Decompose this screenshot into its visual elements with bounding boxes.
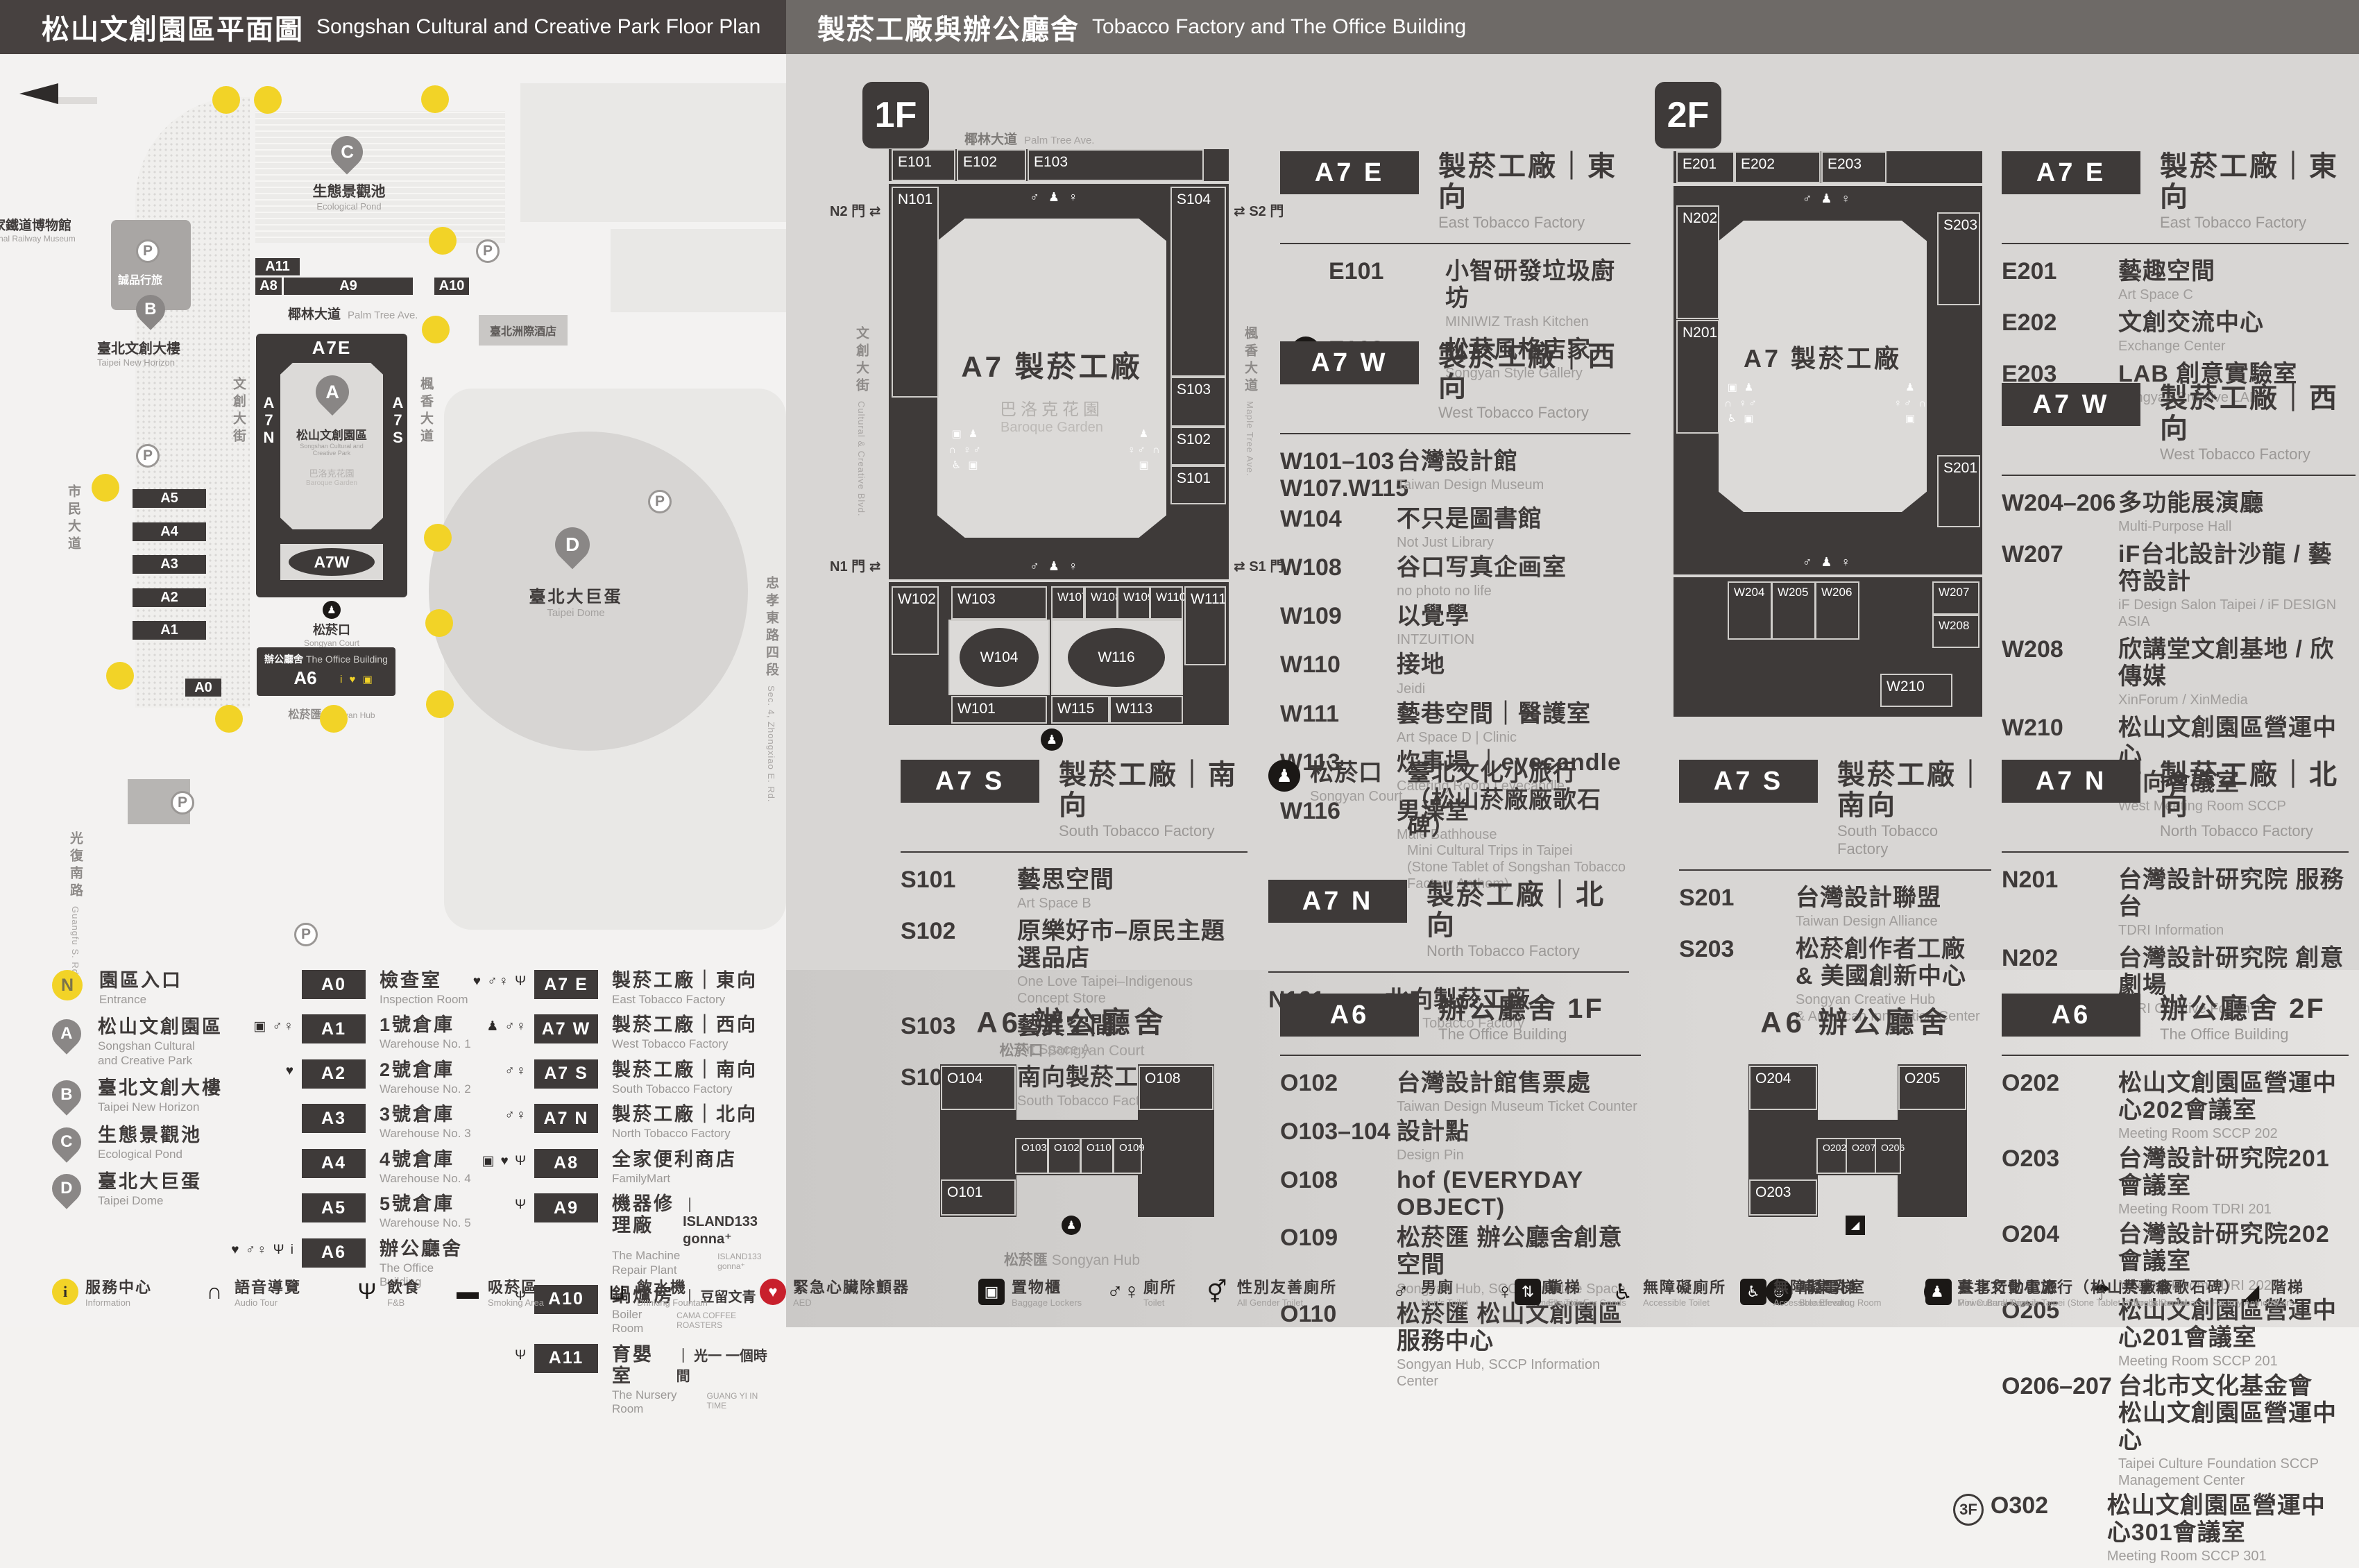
directory-item: E201 藝趣空間Art Space C: [2002, 258, 2349, 303]
building-badge: A6: [302, 1238, 366, 1268]
gate-s2: ⇄ S2 門: [1234, 200, 1284, 220]
directory-item: S201 台灣設計聯盟Taiwan Design Alliance: [1679, 885, 1991, 930]
gate-notch-bottom: ♂ ♟ ♀: [1024, 553, 1087, 579]
building-badge: A7 S: [534, 1059, 598, 1089]
entrance-number: [320, 705, 348, 733]
building-a11: A11: [255, 258, 300, 275]
directory-item: O202 松山文創園區營運中心202會議室Meeting Room SCCP 2…: [2002, 1070, 2349, 1142]
facility-icons: Ψ: [444, 1348, 534, 1363]
legend-row: ♥ A2 2號倉庫 Warehouse No. 2: [212, 1059, 475, 1096]
directory-item: S101 藝思空間Art Space B: [901, 867, 1247, 912]
room: O204: [1751, 1067, 1816, 1109]
facility-icons: ♂♀: [444, 1108, 534, 1123]
legend-row: Ψ A9 機器修理廠｜ ISLAND133 gonna⁺ The Machine…: [444, 1193, 770, 1277]
building-a2: A2: [133, 588, 206, 607]
directory-item: S102 原樂好市–原民主題選品店One Love Taipei–Indigen…: [901, 918, 1247, 1007]
parking-icon: P: [294, 923, 318, 946]
room: N201: [1678, 321, 1718, 432]
badge-a7w: A7 W: [2002, 383, 2140, 426]
map-block-ne1: [520, 83, 786, 222]
legend-icon-item: ♿ 無障礙電梯Accessible Elevator: [1740, 1275, 1857, 1308]
floor-1f-badge: 1F: [862, 82, 929, 148]
room: W113: [1111, 697, 1182, 722]
building-a9: A9: [284, 278, 413, 295]
pond-label: 生態景觀池 Ecological Pond: [297, 180, 401, 212]
facility-icons: ♟ ♂♀: [444, 1019, 534, 1034]
a6-plan-trips-icon: ♟: [1062, 1216, 1081, 1235]
icon-legend-strip-2: ⇅ 貨梯Elevator For Goods ♿ 無障礙電梯Accessible…: [786, 1275, 2359, 1324]
facility-icons-left: ▣ ♟ ∩ ♀♂ ♿ ▣: [1721, 380, 1762, 427]
intercontinental-label: 臺北洲際酒店: [479, 315, 568, 346]
room: W210: [1882, 675, 1951, 706]
directory-item: O203 台灣設計研究院201會議室Meeting Room TDRI 201: [2002, 1145, 2349, 1218]
map-court-label: 松菸口 Songyan Court: [280, 620, 383, 648]
facility-icons: ▣ ♥ Ψ: [444, 1153, 534, 1169]
room: W110: [1151, 588, 1182, 618]
building-a0: A0: [185, 679, 221, 697]
dir-2f-a7e: A7 E 製菸工廠｜東向East Tobacco Factory E201 藝趣…: [2002, 151, 2349, 412]
room: S102: [1172, 428, 1225, 464]
a6-map-icons: i ♥ ▣: [340, 673, 375, 685]
directory-item: W208 欣講堂文創基地 / 欣傳媒XinForum / XinMedia: [2002, 636, 2356, 708]
directory-item: W104 不只是圖書館Not Just Library: [1280, 506, 1630, 551]
a7w-oval: A7W: [289, 548, 375, 576]
room: O203: [1751, 1181, 1816, 1214]
legend-row: ♥ ♂♀ Ψ A7 E 製菸工廠｜東向 East Tobacco Factory: [444, 970, 770, 1007]
room: E203: [1823, 153, 1885, 182]
plan1f-ccblvd: 文創大街Cultural & Creative Blvd.: [852, 326, 871, 517]
entrance-number: [429, 227, 457, 255]
legend-row: ▣ ♥ Ψ A8 全家便利商店 FamilyMart: [444, 1149, 770, 1186]
room: W107: [1053, 588, 1083, 618]
facility-icons: Ψ: [444, 1198, 534, 1213]
entrance-number: [421, 85, 449, 113]
building-a1: A1: [133, 621, 206, 640]
legend-icon: ⇅: [1515, 1279, 1541, 1305]
room: E102: [958, 151, 1025, 180]
directory-item: O108 hof (EVERYDAY OBJECT): [1280, 1167, 1641, 1221]
trips-icon: ♟: [1268, 760, 1300, 792]
room: S201: [1939, 457, 1979, 526]
legend-marker: C: [46, 1121, 87, 1162]
legend-icon: i: [52, 1279, 78, 1305]
plan1f-trips-icon: ♟: [1041, 728, 1063, 751]
directory-item: O102 台灣設計館售票處Taiwan Design Museum Ticket…: [1280, 1070, 1641, 1115]
room: O108: [1140, 1067, 1212, 1109]
legend-icon-item: ⇅ 貨梯Elevator For Goods: [1515, 1275, 1626, 1308]
room: O103: [1016, 1139, 1047, 1173]
building-badge: A3: [302, 1104, 366, 1133]
facility-icons-right: ♟ ♀♂ ∩ ▣: [1892, 380, 1930, 427]
gate-n1: N1 門 ⇄: [830, 555, 880, 575]
room: O205: [1900, 1067, 1965, 1109]
legend-buildings-b: ♥ ♂♀ Ψ A7 E 製菸工廠｜東向 East Tobacco Factory…: [444, 970, 770, 1424]
directory-item: W101–103 W107.W115 台灣設計館Taiwan Design Mu…: [1280, 448, 1630, 502]
floor-2f-badge: 2F: [1655, 82, 1721, 148]
legend-icon-item: ♟ 臺北文化小旅行（松山菸廠廠歌石碑）Mini Cultural Trips i…: [1924, 1275, 2278, 1308]
parking-icon: P: [136, 239, 160, 263]
a7s-label: A7S: [389, 394, 407, 446]
legend-marker: D: [46, 1168, 87, 1209]
entrance-number: [106, 662, 134, 690]
building-badge: A8: [534, 1149, 598, 1178]
room: W206: [1816, 583, 1858, 638]
section-title-zh: 製菸工廠與辦公廳舍: [817, 7, 1080, 47]
legend-icon-item: ⊔ 飲水機Drinking Fountain: [604, 1275, 708, 1308]
directory-item: O103–104 設計點Design Pin: [1280, 1118, 1641, 1164]
legend-row: ♂♀ A7 N 製菸工廠｜北向 North Tobacco Factory: [444, 1104, 770, 1141]
legend-icon: ▬: [454, 1279, 481, 1305]
room: W111: [1186, 588, 1225, 664]
room: O104: [942, 1067, 1014, 1109]
legend-icon: ♥: [760, 1279, 786, 1305]
building-badge: A1: [302, 1014, 366, 1043]
building-a5: A5: [133, 489, 206, 508]
room: W104: [960, 628, 1039, 687]
gate-s1: ⇄ S1 門: [1234, 555, 1284, 575]
north-arrow-tail: [56, 97, 97, 104]
directory-item: O206–207 台北市文化基金會 松山文創園區營運中心Taipei Cultu…: [2002, 1373, 2349, 1489]
room: S101: [1172, 467, 1225, 503]
legend-icon-item: i 服務中心Information: [52, 1275, 152, 1308]
facility-icons: ♥ ♂♀ Ψ i: [212, 1243, 302, 1258]
room: W208: [1934, 616, 1978, 647]
building-badge: A7 N: [534, 1104, 598, 1133]
plan2f-center-label: A7 製菸工廠: [1719, 339, 1927, 375]
plan1f-palm-ave: 椰林大道Palm Tree Ave.: [964, 129, 1094, 148]
badge-a7e: A7 E: [1280, 151, 1419, 194]
room: N101: [893, 188, 937, 396]
a6-map-label: A6: [257, 667, 354, 689]
floor-plan-1f: E101 E102 E103 N101 S104 S103 S102 S101 …: [889, 149, 1229, 725]
room: W101: [953, 697, 1046, 722]
legend-icon: ⊔: [604, 1279, 630, 1305]
directory-item: W111 藝巷空間｜醫護室Art Space D | Clinic: [1280, 701, 1630, 746]
room: E201: [1678, 153, 1733, 182]
gate-n2: N2 門 ⇄: [830, 200, 880, 220]
dir-2f-a7w: A7 W 製菸工廠｜西向West Tobacco Factory W204–20…: [2002, 383, 2356, 821]
legend-icon-item: ∩ 語音導覽Audio Tour: [201, 1275, 301, 1308]
room: W109: [1118, 588, 1149, 618]
legend-row: ♂♀ A7 S 製菸工廠｜南向 South Tobacco Factory: [444, 1059, 770, 1096]
badge-a7w: A7 W: [1280, 341, 1419, 384]
dir-1f-a6: A6 辦公廳舍 1FThe Office Building O102 台灣設計館…: [1280, 994, 1641, 1393]
ecological-pond-area: [255, 111, 505, 243]
legend-row: Ψ A11 育嬰室｜ 光一 一個時間 The Nursery RoomGUANG…: [444, 1344, 770, 1417]
entrance-number: [254, 86, 282, 114]
room: N202: [1678, 207, 1718, 318]
a6-1f-hub-label: 松菸匯 Songyan Hub: [902, 1249, 1242, 1270]
room: O101: [942, 1181, 1014, 1214]
directory-item: W110 接地Jeidi: [1280, 651, 1630, 697]
parking-icon: P: [171, 791, 194, 815]
badge-a6: A6: [2002, 994, 2140, 1037]
room: O207: [1847, 1139, 1875, 1173]
building-a10: A10: [434, 278, 469, 295]
directory-item: W204–206 多功能展演廳Multi-Purpose Hall: [2002, 490, 2356, 535]
dome-label: 臺北大巨蛋 Taipei Dome: [517, 583, 635, 619]
room: W108: [1086, 588, 1116, 618]
badge-a7s: A7 S: [1679, 760, 1818, 803]
a6-plan-stairs-icon: ◢: [1846, 1216, 1865, 1235]
facility-icons: ♥ ♂♀ Ψ: [444, 974, 534, 989]
directory-item: E202 文創交流中心Exchange Center: [2002, 309, 2349, 355]
section-title-en: Tobacco Factory and The Office Building: [1092, 15, 1466, 39]
directory-item: 3F O302 松山文創園區營運中心301會議室Meeting Room SCC…: [2002, 1492, 2349, 1565]
railway-museum-label: 國家鐵道博物館 National Railway Museum: [0, 215, 76, 244]
badge-a6: A6: [1280, 994, 1419, 1037]
parking-icon: P: [476, 239, 500, 263]
room: W207: [1934, 583, 1978, 613]
entrance-number: [422, 316, 450, 343]
page-title-en: Songshan Cultural and Creative Park Floo…: [316, 15, 760, 39]
legend-row: A3 3號倉庫 Warehouse No. 3: [212, 1104, 475, 1141]
directory-item: W108 谷口写真企画室no photo no life: [1280, 554, 1630, 599]
directory-item: E101 小智研發垃圾廚坊MINIWIZ Trash Kitchen: [1329, 258, 1630, 330]
room: W103: [953, 588, 1046, 618]
page-title-zh: 松山文創園區平面圖: [42, 7, 304, 47]
building-badge: A7 W: [534, 1014, 598, 1043]
map-trips-icon: ♟: [323, 601, 341, 619]
building-badge: A2: [302, 1059, 366, 1089]
entrance-number: [426, 690, 454, 718]
legend-row: A0 檢查室 Inspection Room: [212, 970, 475, 1007]
header-left: 松山文創園區平面圖 Songshan Cultural and Creative…: [0, 0, 786, 54]
entrance-number: [424, 524, 452, 552]
header-right: 製菸工廠與辦公廳舍 Tobacco Factory and The Office…: [786, 0, 2359, 54]
a6-office-label: 辦公廳舍 The Office Building: [257, 652, 395, 666]
room: O109: [1114, 1139, 1141, 1173]
building-a3: A3: [133, 555, 206, 574]
dir-2f-a7s: A7 S 製菸工廠｜南向South Tobacco Factory S201 台…: [1679, 760, 1991, 1031]
room: E202: [1736, 153, 1819, 182]
legend-icon-item: Ψ 飲食F&B: [354, 1275, 420, 1308]
legend-row: ▣ ♂♀ A1 1號倉庫 Warehouse No. 1: [212, 1014, 475, 1051]
room: E101: [893, 151, 954, 180]
legend-icon-item: ▬ 吸菸區Smoking Area: [454, 1275, 544, 1308]
dir-2f-a7n: A7 N 製菸工廠｜北向North Tobacco Factory N201 台…: [2002, 760, 2349, 1023]
map-block-ne2: [611, 229, 786, 312]
parking-icon: P: [648, 490, 672, 513]
building-badge: A5: [302, 1193, 366, 1222]
park-label: 松山文創園區 Songshan Cultural and Creative Pa…: [280, 425, 383, 487]
new-horizon-label: 臺北文創大樓 Taipei New Horizon: [97, 337, 180, 368]
plan1f-maple: 楓香大道Maple Tree Ave.: [1241, 326, 1259, 477]
legend-row: A5 5號倉庫 Warehouse No. 5: [212, 1193, 475, 1230]
room: O110: [1082, 1139, 1112, 1173]
floor-plan-2f: E201 E202 E203 N202 N201 S203 S201 ♂ ♟ ♀…: [1674, 151, 1982, 717]
room: W204: [1729, 583, 1771, 638]
legend-icon: ∩: [201, 1279, 228, 1305]
a7n-label: A7N: [259, 394, 278, 446]
ccblvd-street-label: 文創大街: [229, 377, 248, 446]
entrance-number: [212, 86, 240, 114]
legend-marker: A: [46, 1014, 87, 1055]
building-a4: A4: [133, 522, 206, 541]
room: S104: [1172, 188, 1225, 375]
palm-tree-ave-label: 椰林大道Palm Tree Ave.: [288, 304, 418, 323]
room: S103: [1172, 378, 1225, 425]
room: O102: [1049, 1139, 1080, 1173]
building-a8: A8: [255, 278, 282, 295]
legend-icon: Ψ: [354, 1279, 380, 1305]
gate-notch-top: ♂ ♟ ♀: [1024, 184, 1087, 210]
civic-blvd-label: 市民大道: [64, 484, 83, 554]
directory-item: N201 台灣設計研究院 服務台TDRI Information: [2002, 867, 2349, 939]
facility-icons: ♂♀: [444, 1064, 534, 1079]
badge-a7n: A7 N: [1268, 880, 1407, 923]
legend-marker: B: [46, 1075, 87, 1116]
room: W115: [1053, 697, 1108, 722]
legend-buildings-a: A0 檢查室 Inspection Room ▣ ♂♀ A1 1號倉庫 Ware…: [212, 970, 475, 1297]
room: W116: [1068, 628, 1165, 687]
building-badge: A4: [302, 1149, 366, 1178]
directory-item: W207 iF台北設計沙龍 / 藝符設計iF Design Salon Taip…: [2002, 541, 2356, 630]
a6-plan-2f: O204 O203 O202 O207 O206 O205 ◢: [1721, 1034, 1991, 1242]
eslite-hotel-label: 誠品行旅: [118, 271, 162, 287]
a7e-label: A7E: [256, 337, 407, 359]
legend-icon: ♟: [1924, 1279, 1950, 1305]
badge-a7s: A7 S: [901, 760, 1039, 803]
room: O206: [1876, 1139, 1900, 1173]
a6-plan-1f: 松菸口 Songyan Court O104 O101 O103 O102 O1…: [902, 1034, 1242, 1242]
legend-icon: ♿: [1740, 1279, 1766, 1305]
entrance-number: [215, 705, 243, 733]
parking-icon: P: [136, 444, 160, 468]
room: S203: [1939, 214, 1979, 304]
building-badge: A7 E: [534, 970, 598, 999]
room: W102: [893, 588, 937, 654]
floor-3f-badge: 3F: [1953, 1494, 1984, 1526]
facility-icons: ▣ ♂♀: [212, 1019, 302, 1034]
zhongxiao-street-label: 忠孝東路四段Sec. 4, Zhongxiao E. Rd.: [762, 576, 781, 803]
legend-row: ♟ ♂♀ A7 W 製菸工廠｜西向 West Tobacco Factory: [444, 1014, 770, 1051]
legend-row: A4 4號倉庫 Warehouse No. 4: [212, 1149, 475, 1186]
building-badge: A11: [534, 1344, 598, 1373]
guangfu-street-label: 光復南路Guangfu S. Rd.: [66, 831, 85, 978]
entrance-number: [425, 609, 453, 637]
north-arrow-icon: [19, 83, 58, 104]
facility-icons: ♥: [212, 1064, 302, 1079]
building-badge: A9: [534, 1193, 598, 1222]
badge-a7e: A7 E: [2002, 151, 2140, 194]
building-badge: A0: [302, 970, 366, 999]
directory-item: W109 以覺學INTZUITION: [1280, 603, 1630, 648]
gate-notch-bottom: ♂ ♟ ♀: [1798, 549, 1857, 574]
legend-marker: N: [52, 970, 83, 1000]
gate-notch-top: ♂ ♟ ♀: [1798, 186, 1857, 211]
maple-street-label: 楓香大道: [416, 377, 435, 446]
dir-songyan-court: ♟ 松菸口 Songyan Court 臺北文化小旅行 （松山菸廠廠歌石碑） M…: [1268, 760, 1636, 892]
entrance-number: [92, 474, 119, 502]
room: W205: [1773, 583, 1814, 638]
room: E103: [1029, 151, 1202, 180]
room: O202: [1818, 1139, 1846, 1173]
badge-a7n: A7 N: [2002, 760, 2140, 803]
plan1f-center-label: A7 製菸工廠 巴洛克花園 Baroque Garden: [937, 343, 1166, 436]
